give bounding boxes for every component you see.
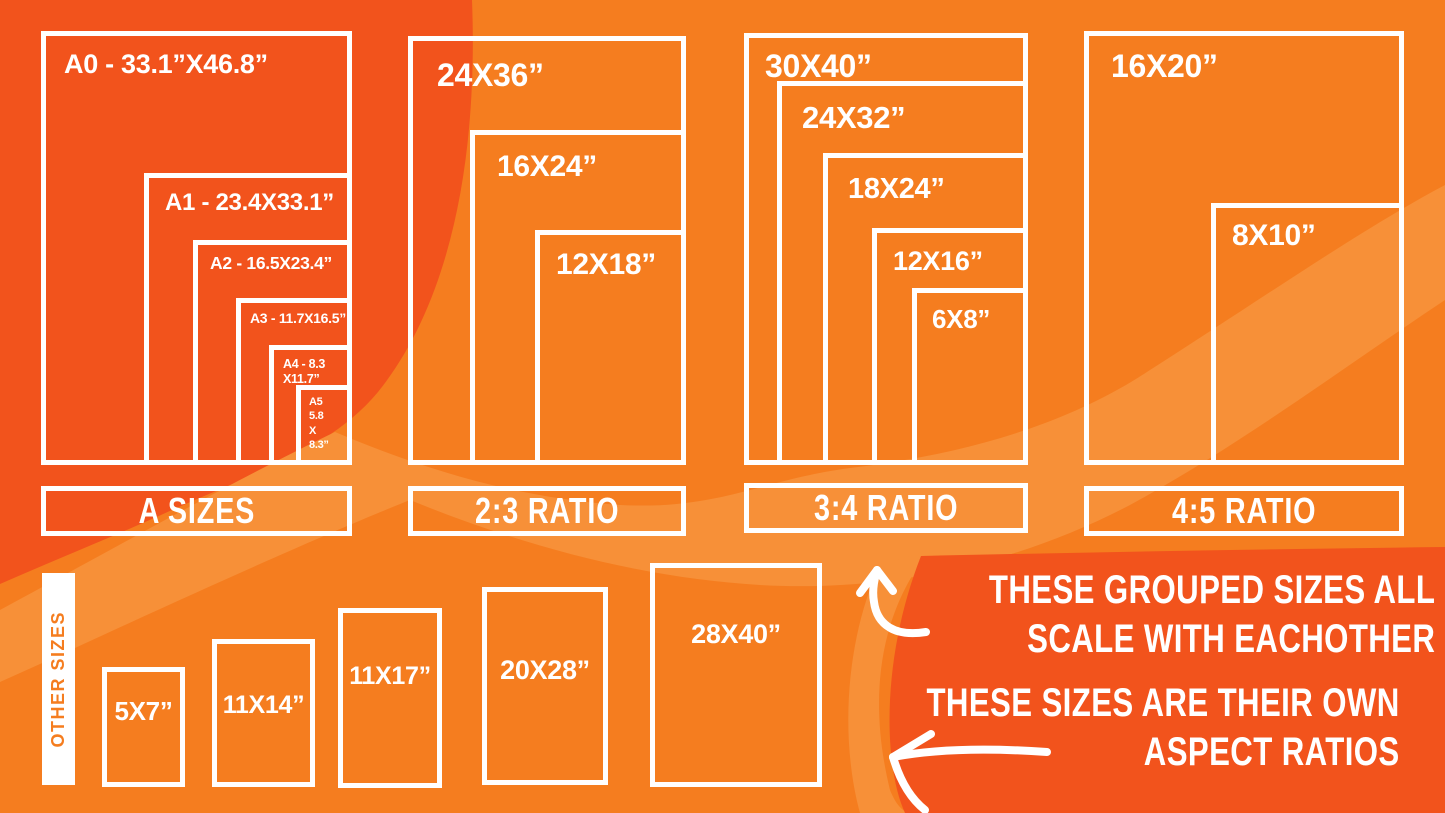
grouped-sizes-note: THESE GROUPED SIZES ALL SCALE WITH EACHO…: [989, 566, 1435, 664]
up-arrow-icon: [860, 570, 926, 633]
size-label-16x24: 16X24”: [475, 135, 681, 199]
own-ratio-note-line1: THESE SIZES ARE THEIR OWN: [927, 679, 1400, 728]
size-label-8x10: 8X10”: [1216, 208, 1399, 264]
size-label-20x28: 20X28”: [487, 592, 603, 684]
group-label-a-sizes-text: A SIZES: [138, 490, 255, 532]
poster-size-infographic: A0 - 33.1”X46.8” A1 - 23.4X33.1” A2 - 16…: [0, 0, 1445, 813]
group-label-3-4-ratio: 3:4 RATIO: [744, 483, 1028, 533]
group-label-4-5-ratio: 4:5 RATIO: [1084, 486, 1404, 536]
size-label-28x40: 28X40”: [655, 568, 817, 648]
size-label-12x16: 12X16”: [877, 233, 1023, 289]
size-label-24x32: 24X32”: [782, 86, 1023, 151]
size-box-5x7: 5X7”: [102, 667, 185, 787]
group-label-2-3-ratio: 2:3 RATIO: [408, 486, 686, 536]
size-label-a5-line3: X: [309, 424, 339, 438]
size-label-a0: A0 - 33.1”X46.8”: [46, 36, 347, 92]
grouped-sizes-note-line1: THESE GROUPED SIZES ALL: [989, 566, 1435, 615]
size-box-11x14: 11X14”: [212, 639, 315, 787]
size-box-20x28: 20X28”: [482, 587, 608, 785]
size-box-28x40: 28X40”: [650, 563, 822, 787]
size-label-a5-line2: 5.8: [309, 409, 339, 423]
size-box-11x17: 11X17”: [338, 608, 442, 788]
size-box-6x8: 6X8”: [912, 288, 1028, 465]
size-label-18x24: 18X24”: [828, 158, 1023, 220]
other-sizes-bar-text: OTHER SIZES: [48, 611, 69, 748]
group-label-2-3-ratio-text: 2:3 RATIO: [475, 490, 619, 532]
size-box-8x10: 8X10”: [1211, 203, 1404, 465]
size-label-a4-line1: A4 - 8.3: [283, 357, 338, 372]
size-box-12x18: 12X18”: [535, 230, 686, 465]
size-label-a5: A5 5.8 X 8.3”: [301, 390, 347, 457]
size-label-a5-line4: 8.3”: [309, 438, 339, 452]
size-label-24x36: 24X36”: [413, 41, 681, 111]
grouped-sizes-note-line2: SCALE WITH EACHOTHER: [989, 615, 1435, 664]
size-label-16x20: 16X20”: [1089, 36, 1399, 98]
size-label-a3: A3 - 11.7X16.5”: [241, 303, 347, 334]
size-label-6x8: 6X8”: [917, 293, 1023, 346]
size-label-5x7: 5X7”: [107, 672, 180, 725]
size-label-12x18: 12X18”: [540, 235, 681, 295]
size-label-11x17: 11X17”: [343, 613, 437, 689]
size-label-a2: A2 - 16.5X23.4”: [198, 245, 347, 281]
size-label-a5-line1: A5: [309, 395, 339, 409]
group-label-4-5-ratio-text: 4:5 RATIO: [1172, 490, 1316, 532]
size-label-a1: A1 - 23.4X33.1”: [149, 178, 347, 227]
size-box-a5: A5 5.8 X 8.3”: [296, 385, 352, 465]
size-label-11x14: 11X14”: [217, 644, 310, 718]
other-sizes-bar: OTHER SIZES: [42, 573, 75, 785]
group-label-3-4-ratio-text: 3:4 RATIO: [814, 487, 958, 529]
group-label-a-sizes: A SIZES: [41, 486, 352, 536]
own-ratio-note: THESE SIZES ARE THEIR OWN ASPECT RATIOS: [927, 679, 1400, 777]
own-ratio-note-line2: ASPECT RATIOS: [927, 728, 1400, 777]
